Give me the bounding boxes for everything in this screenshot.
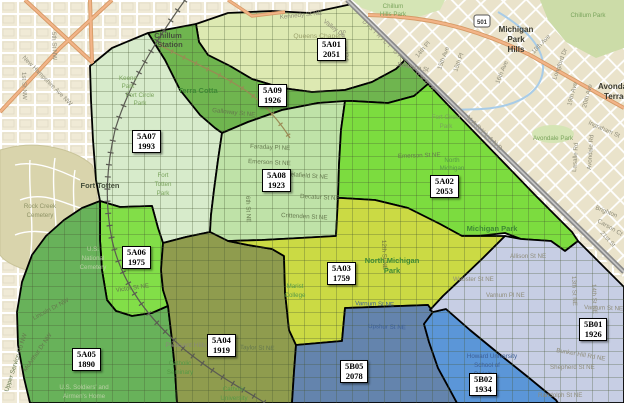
psa-value: 1919 — [212, 346, 231, 356]
rock-creek-cemetery-label-2: Cemetery — [27, 212, 55, 219]
fort-circle-park-label: Fort Circle — [126, 92, 155, 99]
us-national-cemetery-label: U.S. — [87, 246, 99, 253]
fort-circle-park-2-label: Fort Circle — [432, 114, 461, 121]
avondale-label: Avondale — [598, 82, 624, 91]
michigan-park-hills-label-3: Hills — [508, 45, 525, 54]
fort-circle-park-2-label-2: Park — [440, 123, 454, 130]
us-national-cemetery-label-3: Cemetery — [80, 264, 108, 271]
fort-totten-park-label-3: Park — [157, 190, 171, 197]
fort-circle-park-label-2: Park — [134, 100, 148, 107]
michigan-park-hills-label: Michigan — [499, 25, 534, 34]
psa-label-5A06[interactable]: 5A061975 — [122, 246, 151, 269]
chillum-station-label: Chillum — [154, 31, 182, 40]
marist-college-label-2: College — [285, 292, 307, 299]
psa-label-5A05[interactable]: 5A051890 — [72, 348, 101, 371]
chillum-park-label: Chillum Park — [570, 12, 606, 19]
street-label-5th-st-nw: 5th St NW — [50, 32, 58, 61]
psa-label-5A04[interactable]: 5A041919 — [207, 334, 236, 357]
street-label-6th-st: 6th St NE — [244, 196, 252, 223]
street-label-varnum-st: Varnum St NE — [355, 300, 394, 308]
street-label-emerson-st-2: Emerson St NE — [398, 152, 441, 160]
psa-label-5A09[interactable]: 5A091926 — [258, 84, 287, 107]
terrace-label: Terrace — [604, 92, 624, 101]
keene-park-label-2: Park — [122, 83, 136, 90]
psa-value: 1934 — [474, 385, 492, 395]
pleasant-hills-label: Pleasant Hills — [165, 342, 207, 349]
terra-cotta-label: Terra Cotta — [178, 86, 218, 95]
route-501-shield: 501 — [474, 15, 490, 27]
catholic-seminary-label-2: Seminary — [167, 369, 194, 376]
howard-university-label-2: School of — [474, 362, 500, 369]
soldiers-home-label-2: Airmen's Home — [63, 393, 106, 400]
street-label-13th-st: 13th St NE — [570, 276, 578, 306]
chillum-station-label-2: Station — [157, 40, 183, 49]
psa-map: DISTRICT OF COLUMBIA MARYLAND 501 Valley… — [0, 0, 624, 403]
psa-label-5A01[interactable]: 5A012051 — [317, 38, 346, 61]
svg-text:501: 501 — [477, 20, 488, 26]
psa-label-5A07[interactable]: 5A071993 — [132, 130, 161, 153]
keene-park-label: Keene — [119, 75, 137, 82]
psa-value: 1993 — [137, 142, 156, 152]
north-michigan-small-label-2: Michigan — [440, 165, 465, 172]
psa-value: 1926 — [584, 330, 602, 340]
street-label-14th-st: 14th St NE — [590, 284, 598, 314]
michigan-park-label: Michigan Park — [467, 224, 519, 233]
fort-totten-park-label-2: Totten — [155, 181, 172, 188]
rock-creek-cemetery-label: Rock Creek — [24, 203, 57, 210]
north-michigan-small-label: North — [444, 157, 460, 164]
street-label-randolph-st: Randolph St NE — [538, 392, 582, 399]
psa-value: 2053 — [435, 187, 454, 197]
map-canvas: DISTRICT OF COLUMBIA MARYLAND 501 Valley… — [0, 0, 624, 403]
psa-value: 1890 — [77, 360, 96, 370]
street-label-varnum-st-2: Varnum St NE — [584, 304, 623, 312]
catholic-seminary-label: Catholic — [169, 360, 191, 367]
street-label-shepherd-st: Shepherd St NE — [550, 364, 595, 371]
north-michigan-park-label: North Michigan — [365, 256, 420, 265]
psa-label-5B05[interactable]: 5B052078 — [340, 360, 368, 383]
street-label-allison-st: Allison St NE — [510, 253, 546, 260]
psa-label-5A03[interactable]: 5A031759 — [327, 262, 356, 285]
soldiers-home-label: U.S. Soldiers' and — [59, 384, 109, 391]
street-label-varnum-pl: Varnum Pl NE — [486, 292, 525, 299]
psa-label-5B02[interactable]: 5B021934 — [469, 373, 497, 396]
psa-value: 1923 — [267, 181, 286, 191]
fort-totten-label: Fort Totten — [80, 181, 119, 190]
psa-value: 1759 — [332, 274, 351, 284]
howard-university-label: Howard University — [467, 353, 518, 360]
psa-label-5B01[interactable]: 5B011926 — [579, 318, 607, 341]
street-label-taylor-st: Taylor St NE — [240, 344, 275, 352]
street-label-webster-st: Webster St NE — [453, 276, 494, 283]
north-michigan-park-label-2: Park — [384, 266, 401, 275]
avondale-park-label: Avondale Park — [533, 135, 574, 142]
psa-value: 1975 — [127, 258, 146, 268]
us-national-cemetery-label-2: National — [82, 255, 105, 262]
psa-value: 2078 — [345, 372, 363, 382]
street-label-1st-st-nw: 1st St NW — [20, 72, 28, 100]
psa-value: 2051 — [322, 50, 341, 60]
marist-college-label: Marist — [287, 283, 304, 290]
fort-totten-park-label: Fort — [157, 172, 168, 179]
region-5A04[interactable] — [161, 232, 296, 403]
catholic-university-label: Catholic — [223, 386, 245, 393]
michigan-park-hills-label-2: Park — [507, 35, 525, 44]
psa-value: 1926 — [263, 96, 282, 106]
psa-label-5A02[interactable]: 5A022053 — [430, 175, 459, 198]
chillum-hills-park-label: Chillum — [383, 3, 404, 10]
chillum-hills-park-label-2: Hills Park — [380, 11, 407, 18]
catholic-university-label-2: University — [220, 395, 248, 402]
psa-label-5A08[interactable]: 5A081923 — [262, 169, 291, 192]
street-label-upshur-st: Upshur St NE — [368, 323, 406, 331]
